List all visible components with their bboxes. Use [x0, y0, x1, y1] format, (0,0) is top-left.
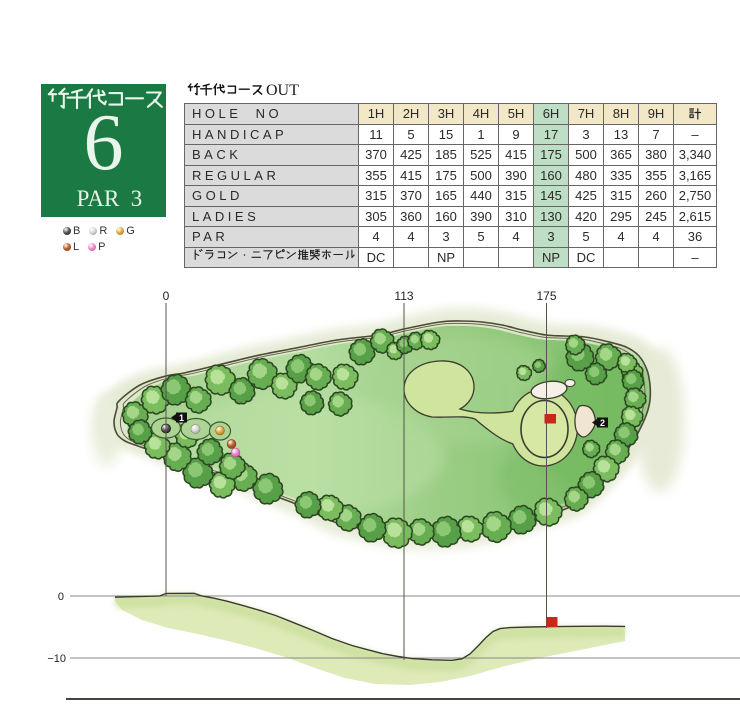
svg-text:175: 175: [536, 289, 556, 303]
svg-text:0: 0: [58, 591, 64, 603]
svg-text:0: 0: [163, 289, 170, 303]
svg-text:−10: −10: [47, 653, 66, 665]
svg-text:1: 1: [179, 413, 184, 423]
svg-text:113: 113: [394, 289, 413, 303]
svg-text:OUT: OUT: [266, 82, 299, 99]
svg-text:2: 2: [600, 418, 605, 428]
